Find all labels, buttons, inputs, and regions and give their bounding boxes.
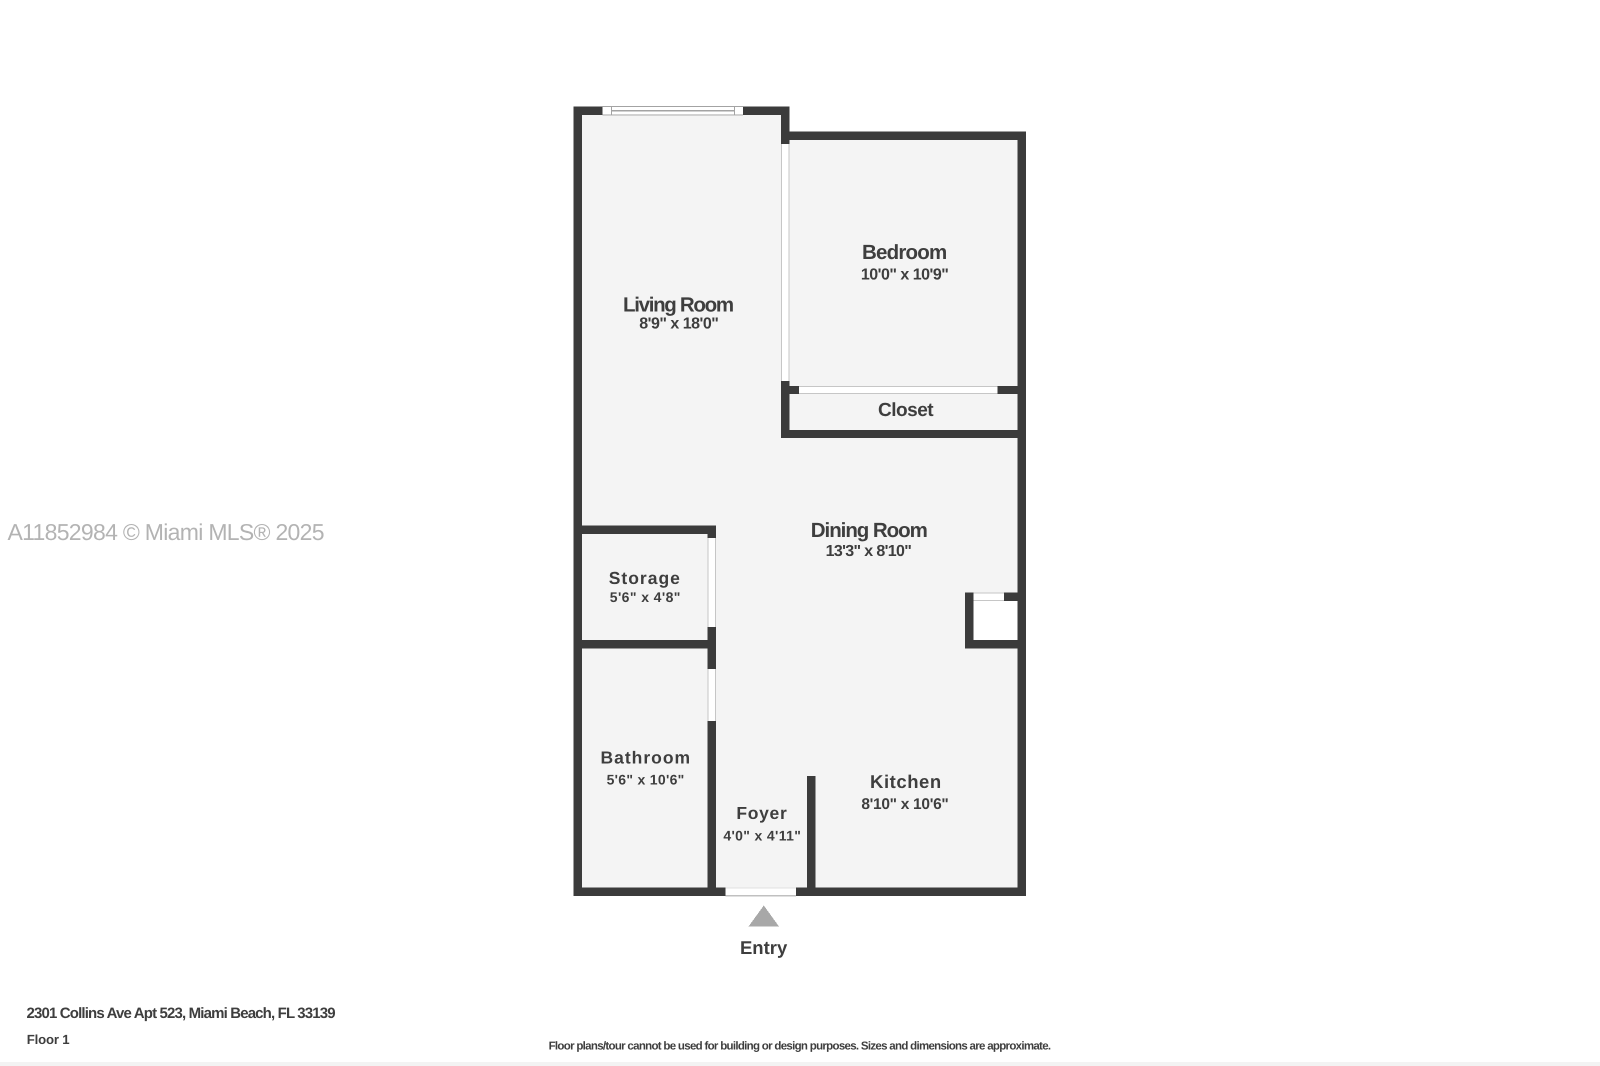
svg-text:Floor 1: Floor 1 <box>27 1032 70 1047</box>
svg-text:Dining Room: Dining Room <box>811 519 927 542</box>
svg-text:5'6" x 10'6": 5'6" x 10'6" <box>607 771 685 787</box>
svg-text:4'0" x 4'11": 4'0" x 4'11" <box>723 828 801 844</box>
svg-text:Entry: Entry <box>740 937 788 958</box>
svg-text:2301 Collins Ave Apt 523, Miam: 2301 Collins Ave Apt 523, Miami Beach, F… <box>27 1005 336 1022</box>
svg-text:13'3" x 8'10": 13'3" x 8'10" <box>826 543 912 560</box>
svg-text:10'0" x 10'9": 10'0" x 10'9" <box>861 267 948 284</box>
svg-text:Foyer: Foyer <box>736 803 787 823</box>
svg-text:8'9" x 18'0": 8'9" x 18'0" <box>639 316 718 333</box>
svg-text:Bedroom: Bedroom <box>862 241 946 264</box>
svg-text:Storage: Storage <box>609 568 681 588</box>
svg-text:Kitchen: Kitchen <box>870 771 942 792</box>
svg-text:Bathroom: Bathroom <box>600 748 691 768</box>
svg-text:8'10" x 10'6": 8'10" x 10'6" <box>861 796 948 813</box>
svg-text:Floor plans/tour cannot be use: Floor plans/tour cannot be used for buil… <box>549 1041 1051 1053</box>
svg-text:Closet: Closet <box>878 400 934 421</box>
svg-text:Living Room: Living Room <box>623 293 733 316</box>
svg-text:5'6" x 4'8": 5'6" x 4'8" <box>610 589 681 605</box>
svg-text:A11852984 © Miami MLS® 2025: A11852984 © Miami MLS® 2025 <box>8 519 324 545</box>
